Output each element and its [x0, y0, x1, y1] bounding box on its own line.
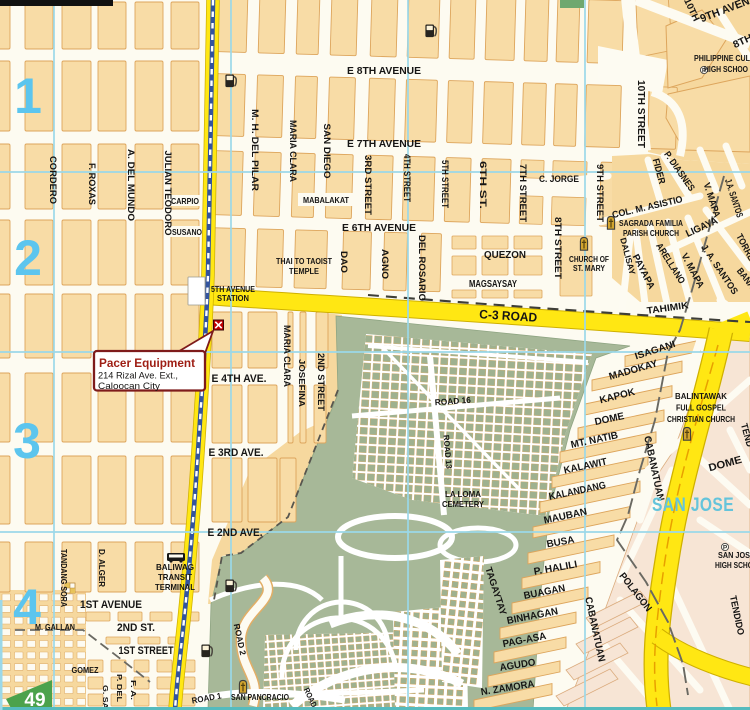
svg-text:1ST AVENUE: 1ST AVENUE: [80, 599, 142, 611]
svg-text:TERMINAL: TERMINAL: [155, 582, 195, 592]
svg-text:G. SA: G. SA: [101, 685, 108, 709]
svg-text:6TH ST.: 6TH ST.: [477, 161, 488, 209]
svg-text:E 8TH AVENUE: E 8TH AVENUE: [347, 65, 421, 77]
svg-text:HIGH SCHO: HIGH SCHO: [715, 561, 750, 570]
svg-text:CARPIO: CARPIO: [171, 196, 199, 206]
svg-text:AGNO: AGNO: [379, 249, 390, 279]
svg-text:JULIAN TEODORO: JULIAN TEODORO: [162, 151, 173, 236]
svg-text:1: 1: [14, 68, 42, 124]
svg-text:2: 2: [14, 230, 42, 286]
svg-text:SAN DIEGO: SAN DIEGO: [321, 124, 332, 179]
svg-text:SAN PANCRACIO: SAN PANCRACIO: [231, 693, 289, 702]
svg-text:8TH STREET: 8TH STREET: [552, 217, 563, 279]
svg-text:F. A.: F. A.: [129, 680, 136, 700]
svg-text:CHURCH OF: CHURCH OF: [569, 255, 609, 264]
svg-text:M. GALLAN: M. GALLAN: [35, 622, 75, 632]
svg-text:MAGSAYSAY: MAGSAYSAY: [469, 279, 517, 290]
svg-text:Caloocan City: Caloocan City: [98, 381, 160, 392]
svg-text:CEMETERY: CEMETERY: [442, 499, 484, 509]
svg-text:2ND STREET: 2ND STREET: [315, 353, 326, 411]
svg-text:3: 3: [13, 413, 41, 469]
svg-text:5TH STREET: 5TH STREET: [439, 160, 450, 208]
svg-text:STATION: STATION: [217, 294, 249, 303]
svg-text:DAO: DAO: [338, 251, 349, 273]
svg-text:1ST STREET: 1ST STREET: [119, 645, 174, 657]
svg-text:F. ROXAS: F. ROXAS: [86, 163, 97, 205]
svg-text:SAN JOS: SAN JOS: [718, 551, 750, 560]
svg-text:2ND ST.: 2ND ST.: [117, 622, 155, 634]
svg-text:5TH AVENUE: 5TH AVENUE: [211, 285, 256, 294]
svg-text:BALIWAG: BALIWAG: [156, 562, 194, 572]
svg-text:7TH STREET: 7TH STREET: [517, 164, 528, 222]
svg-text:Pacer Equipment: Pacer Equipment: [99, 358, 195, 370]
svg-text:DEL ROSARIO: DEL ROSARIO: [416, 235, 427, 301]
svg-text:ST. MARY: ST. MARY: [573, 264, 606, 273]
svg-text:10TH STREET: 10TH STREET: [635, 80, 646, 148]
svg-text:A. DEL MUNDO: A. DEL MUNDO: [125, 149, 136, 221]
svg-text:TRANSIT: TRANSIT: [158, 572, 193, 582]
svg-text:FULL GOSPEL: FULL GOSPEL: [676, 403, 726, 413]
svg-text:THAI TO TAOIST: THAI TO TAOIST: [276, 257, 332, 266]
svg-text:E 2ND AVE.: E 2ND AVE.: [208, 527, 263, 539]
svg-text:M. H. DEL PILAR: M. H. DEL PILAR: [249, 109, 260, 191]
svg-text:HIGH SCHOO: HIGH SCHOO: [704, 65, 748, 74]
svg-text:4TH STREET: 4TH STREET: [401, 154, 412, 202]
svg-text:4: 4: [13, 579, 41, 635]
svg-text:E 7TH AVENUE: E 7TH AVENUE: [347, 138, 421, 150]
svg-text:QUEZON: QUEZON: [484, 250, 526, 261]
svg-text:CORDERO: CORDERO: [47, 156, 58, 204]
svg-text:P. DEL: P. DEL: [115, 674, 122, 703]
svg-text:E 6TH AVENUE: E 6TH AVENUE: [342, 222, 416, 234]
svg-text:D. ALGER: D. ALGER: [97, 549, 106, 587]
svg-text:E 3RD AVE.: E 3RD AVE.: [209, 447, 264, 459]
svg-text:GOMEZ: GOMEZ: [72, 665, 99, 675]
svg-text:SUSANO: SUSANO: [172, 227, 202, 237]
svg-text:TEMPLE: TEMPLE: [289, 267, 320, 276]
svg-text:MARIA CLARA: MARIA CLARA: [281, 325, 292, 387]
svg-text:E 4TH AVE.: E 4TH AVE.: [212, 373, 267, 385]
svg-text:9TH STREET: 9TH STREET: [594, 164, 605, 222]
svg-text:214 Rizal Ave. Ext.,: 214 Rizal Ave. Ext.,: [98, 371, 178, 382]
svg-text:PHILIPPINE CUL: PHILIPPINE CUL: [694, 54, 750, 63]
svg-text:LA LOMA: LA LOMA: [445, 489, 481, 499]
svg-text:JOSEFINA: JOSEFINA: [297, 359, 306, 407]
svg-text:3RD STREET: 3RD STREET: [362, 155, 373, 215]
svg-text:TANDANG SORA: TANDANG SORA: [59, 549, 68, 607]
svg-text:PARISH CHURCH: PARISH CHURCH: [623, 229, 679, 238]
svg-text:MARIA CLARA: MARIA CLARA: [287, 120, 298, 182]
svg-text:MABALAKAT: MABALAKAT: [303, 195, 350, 205]
svg-text:SAN JOSE: SAN JOSE: [652, 495, 734, 516]
svg-text:BALINTAWAK: BALINTAWAK: [675, 391, 728, 401]
svg-text:CHRISTIAN CHURCH: CHRISTIAN CHURCH: [667, 414, 735, 424]
svg-text:SAGRADA FAMILIA: SAGRADA FAMILIA: [619, 219, 683, 228]
svg-text:C. JORGE: C. JORGE: [539, 174, 579, 185]
